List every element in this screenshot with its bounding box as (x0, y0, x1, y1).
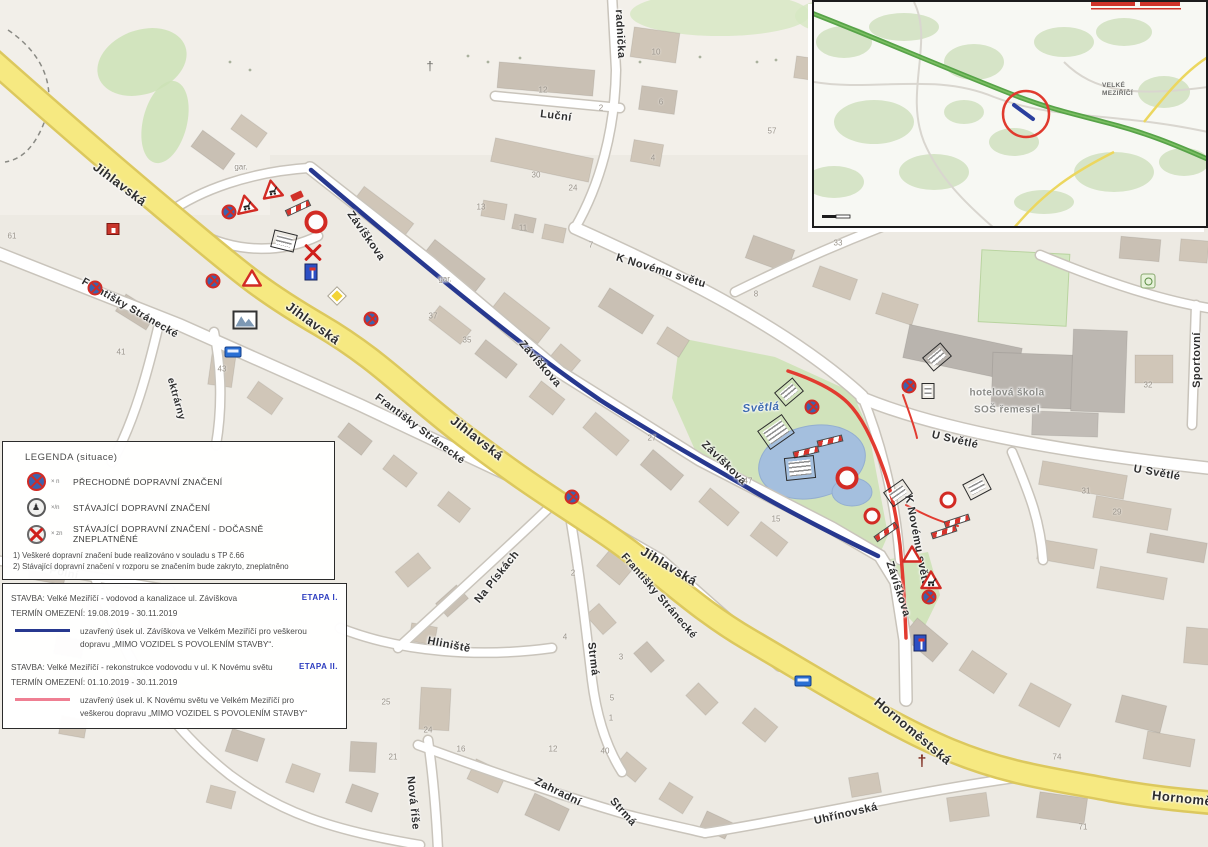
building (750, 521, 788, 556)
building (812, 266, 857, 300)
traffic-plan-map-page: { "title": "Dopravně inženýrské opatření… (0, 0, 1208, 847)
building (338, 423, 373, 456)
building (1032, 411, 1099, 437)
building (639, 86, 678, 115)
building (947, 792, 990, 821)
building (512, 214, 537, 233)
legend-item: × n PŘECHODNÉ DOPRAVNÍ ZNAČENÍ (25, 472, 326, 491)
closure-line-swatch-blue (15, 629, 70, 632)
legend-panel: LEGENDA (situace) × n PŘECHODNÉ DOPRAVNÍ… (2, 441, 335, 580)
building (1135, 355, 1173, 383)
closure-description: uzavřený úsek ul. K Novému světu ve Velk… (80, 694, 325, 721)
building (481, 200, 507, 220)
building (959, 650, 1007, 693)
legend-item: × zn STÁVAJÍCÍ DOPRAVNÍ ZNAČENÍ - DOČASN… (25, 524, 326, 544)
building (1039, 461, 1128, 500)
building (247, 381, 283, 415)
building (542, 224, 567, 243)
legend-item-code: ×/n (51, 505, 73, 511)
building (1147, 533, 1208, 563)
building (1183, 627, 1208, 665)
legend-item-code: × zn (51, 531, 73, 537)
existing-sign-icon: ♟ (25, 498, 47, 517)
inset-town-label: VELKÉ MEZIŘÍČÍ (1102, 82, 1133, 99)
building (429, 306, 472, 345)
building (349, 741, 377, 772)
overview-inset-map: VELKÉ MEZIŘÍČÍ (812, 0, 1208, 228)
etapa-badge: ETAPA II. (299, 662, 338, 672)
building (1071, 329, 1128, 413)
building (1143, 731, 1195, 767)
building (1115, 695, 1166, 733)
legend-item-label: STÁVAJÍCÍ DOPRAVNÍ ZNAČENÍ - DOČASNĚ ZNE… (73, 524, 326, 544)
construction-term: TERMÍN OMEZENÍ: 19.08.2019 - 30.11.2019 (11, 608, 338, 618)
invalidated-sign-icon (25, 525, 47, 544)
legend-item-code: × n (51, 479, 73, 485)
inset-map-graphics (814, 2, 1206, 226)
construction-entry-1: STAVBA: Velké Meziříčí - vodovod a kanal… (11, 593, 338, 652)
building (1019, 683, 1072, 728)
building (419, 687, 451, 731)
legend-title: LEGENDA (situace) (25, 452, 326, 463)
legend-item: ♟ ×/n STÁVAJÍCÍ DOPRAVNÍ ZNAČENÍ (25, 498, 326, 517)
building (630, 140, 663, 167)
closure-line-swatch-red (15, 698, 70, 701)
construction-title: STAVBA: Velké Meziříčí - rekonstrukce vo… (11, 662, 273, 672)
construction-title: STAVBA: Velké Meziříčí - vodovod a kanal… (11, 593, 237, 603)
building (475, 340, 518, 379)
building (634, 641, 665, 672)
building (659, 782, 693, 814)
cut-off-red-annotation (1091, 2, 1181, 10)
building (1097, 566, 1168, 599)
legend-note-1: 1) Veškeré dopravní značení bude realizo… (13, 551, 326, 562)
building (1093, 496, 1172, 531)
building (876, 293, 919, 326)
legend-note-2: 2) Stávající dopravní značení v rozporu … (13, 562, 326, 573)
closure-description: uzavřený úsek ul. Závíškova ve Velkém Me… (80, 625, 325, 652)
construction-term: TERMÍN OMEZENÍ: 01.10.2019 - 30.11.2019 (11, 677, 338, 687)
building (630, 27, 680, 63)
building (742, 708, 778, 743)
building (529, 381, 565, 415)
building (640, 449, 683, 490)
building (1179, 239, 1208, 263)
building (437, 491, 470, 522)
legend-item-label: PŘECHODNÉ DOPRAVNÍ ZNAČENÍ (73, 477, 222, 487)
building (383, 455, 418, 488)
inset-forest-blobs (814, 13, 1206, 214)
building (686, 683, 719, 716)
building (699, 488, 740, 526)
inset-scale-bar (822, 215, 850, 218)
etapa-badge: ETAPA I. (302, 593, 338, 603)
construction-entry-2: STAVBA: Velké Meziříčí - rekonstrukce vo… (11, 662, 338, 721)
building (395, 553, 431, 588)
legend-item-label: STÁVAJÍCÍ DOPRAVNÍ ZNAČENÍ (73, 503, 210, 513)
temporary-sign-icon (25, 472, 47, 491)
building (598, 288, 654, 334)
building (848, 773, 881, 798)
building (1119, 236, 1161, 261)
construction-info-panel: STAVBA: Velké Meziříčí - vodovod a kanal… (2, 583, 347, 729)
